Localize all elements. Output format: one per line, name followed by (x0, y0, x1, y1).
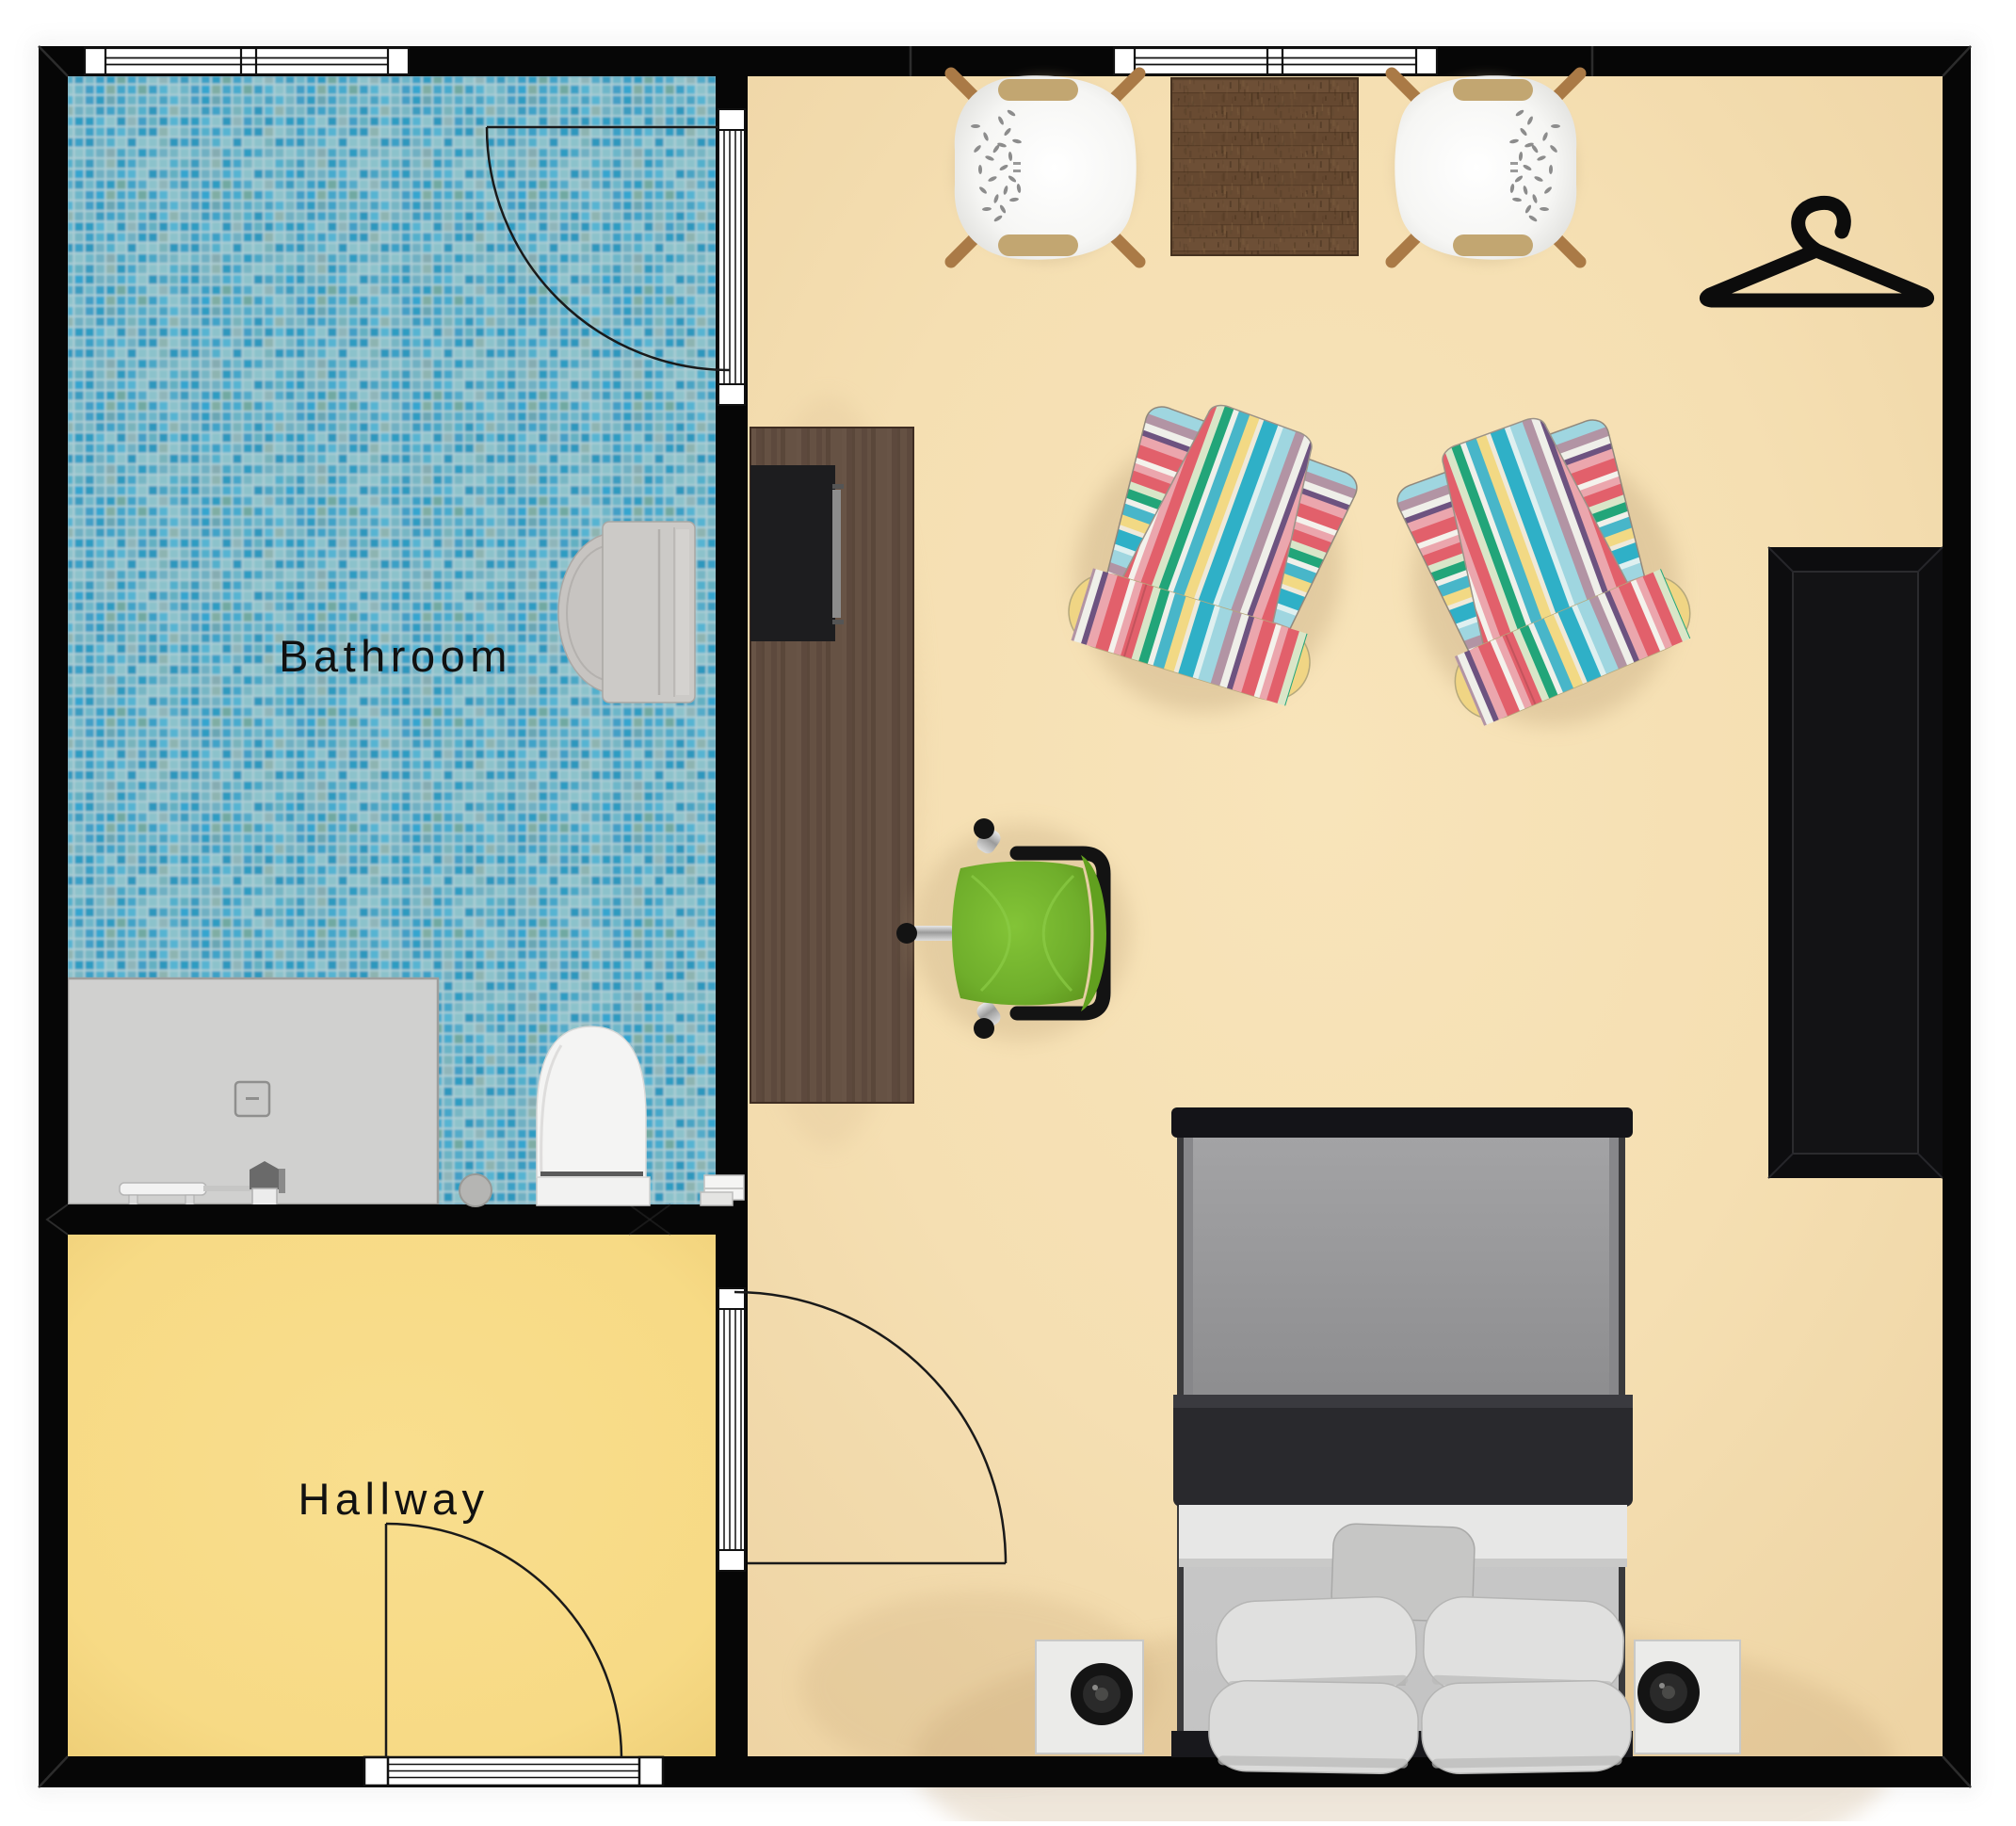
svg-text:Bathroom: Bathroom (279, 631, 512, 681)
svg-text:Hallway: Hallway (298, 1474, 489, 1524)
